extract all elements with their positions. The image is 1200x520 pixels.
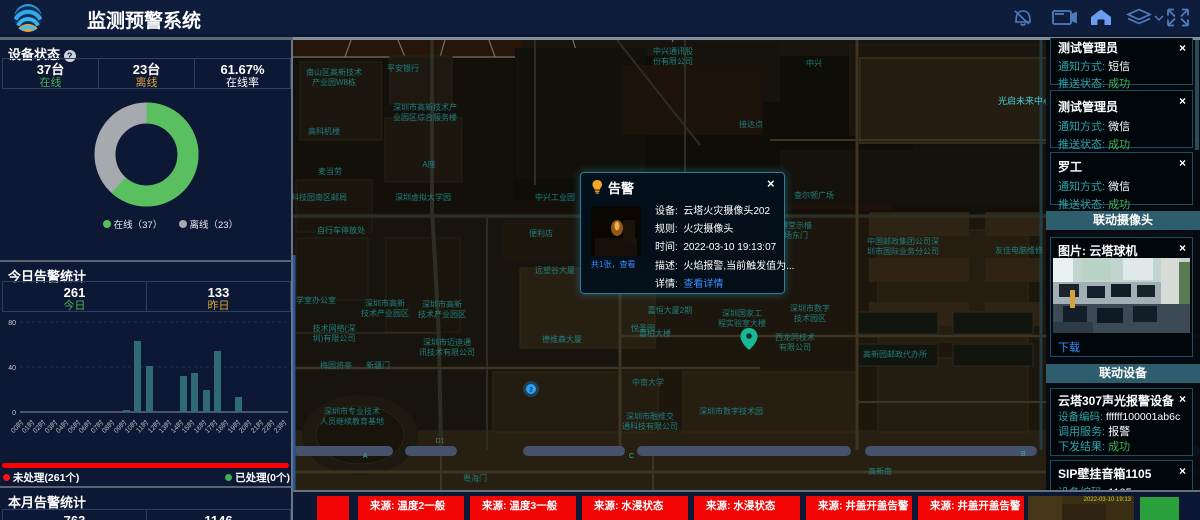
svg-text:深圳市高新: 深圳市高新 [365, 298, 405, 308]
svg-text:C: C [629, 453, 634, 460]
svg-text:圳)有限公司: 圳)有限公司 [313, 333, 356, 343]
svg-text:技术网络(深: 技术网络(深 [313, 323, 356, 333]
svg-text:深圳市迈迪通: 深圳市迈迪通 [423, 337, 471, 347]
svg-text:份有限公司: 份有限公司 [653, 56, 693, 66]
svg-text:嘉柏大楼: 嘉柏大楼 [639, 328, 671, 338]
svg-text:技术园区: 技术园区 [794, 313, 826, 323]
svg-text:晶科学室办公室: 晶科学室办公室 [293, 295, 336, 305]
svg-text:嘉恒大厦2期: 嘉恒大厦2期 [648, 305, 692, 315]
svg-text:深圳市融维交: 深圳市融维交 [626, 411, 674, 421]
svg-text:科技园南区邮局: 科技园南区邮局 [293, 192, 347, 202]
svg-text:讯技术有限公司: 讯技术有限公司 [419, 347, 475, 357]
svg-text:自行车停放处: 自行车停放处 [317, 225, 365, 235]
svg-text:技术产业园区: 技术产业园区 [361, 308, 409, 318]
svg-text:A: A [363, 453, 368, 460]
svg-text:D1: D1 [436, 438, 445, 445]
svg-text:深圳市数字: 深圳市数字 [790, 303, 830, 313]
svg-text:2: 2 [529, 387, 533, 394]
svg-text:中南大学: 中南大学 [632, 377, 664, 387]
svg-text:深圳市高新: 深圳市高新 [422, 299, 462, 309]
svg-text:80: 80 [8, 320, 16, 327]
svg-text:新疆门: 新疆门 [366, 360, 390, 370]
svg-text:深圳国家工: 深圳国家工 [722, 308, 762, 318]
svg-text:业园区综合服务楼: 业园区综合服务楼 [393, 112, 457, 122]
svg-text:便利店: 便利店 [529, 228, 553, 238]
svg-text:查尔顿广场: 查尔顿广场 [794, 190, 834, 200]
svg-text:中国邮政集团公司深: 中国邮政集团公司深 [867, 236, 939, 246]
svg-text:高新园邮政代办所: 高新园邮政代办所 [863, 349, 927, 359]
svg-text:程实验室大楼: 程实验室大楼 [718, 318, 766, 328]
svg-text:高科机楼: 高科机楼 [308, 126, 340, 136]
svg-text:有限公司: 有限公司 [779, 342, 811, 352]
svg-text:圳市国际业务分公司: 圳市国际业务分公司 [867, 246, 939, 256]
svg-text:粤海门: 粤海门 [463, 473, 487, 483]
svg-text:深圳市专业技术: 深圳市专业技术 [324, 406, 380, 416]
svg-text:友佳电脑维修: 友佳电脑维修 [995, 245, 1043, 255]
svg-text:0: 0 [12, 410, 16, 417]
svg-text:高新南: 高新南 [868, 466, 892, 476]
svg-text:中兴通讯股: 中兴通讯股 [653, 46, 693, 56]
svg-text:产业园W8栋: 产业园W8栋 [312, 77, 356, 87]
svg-text:B: B [1021, 451, 1026, 458]
svg-text:远望谷大厦: 远望谷大厦 [535, 265, 575, 275]
svg-text:西龙同枝术: 西龙同枝术 [775, 332, 815, 342]
svg-text:技术产业园区: 技术产业园区 [418, 309, 466, 319]
svg-text:麦当劳: 麦当劳 [318, 166, 342, 176]
svg-text:中兴: 中兴 [806, 58, 822, 68]
svg-text:中兴工业园: 中兴工业园 [535, 192, 575, 202]
svg-text:梅园将亭: 梅园将亭 [320, 360, 352, 370]
svg-text:A座: A座 [422, 159, 435, 169]
svg-text:深圳虚拟大学园: 深圳虚拟大学园 [395, 192, 451, 202]
svg-text:深圳市数字技术园: 深圳市数字技术园 [699, 406, 763, 416]
svg-text:德维森大厦: 德维森大厦 [542, 334, 582, 344]
svg-text:接达点: 接达点 [739, 119, 763, 129]
svg-text:40: 40 [8, 365, 16, 372]
svg-text:南山区高新技术: 南山区高新技术 [306, 67, 362, 77]
svg-text:深圳市高新技术产: 深圳市高新技术产 [393, 102, 457, 112]
svg-text:平安银行: 平安银行 [387, 63, 419, 73]
svg-text:通科技有限公司: 通科技有限公司 [622, 421, 678, 431]
svg-text:人员继续教育基地: 人员继续教育基地 [320, 416, 384, 426]
